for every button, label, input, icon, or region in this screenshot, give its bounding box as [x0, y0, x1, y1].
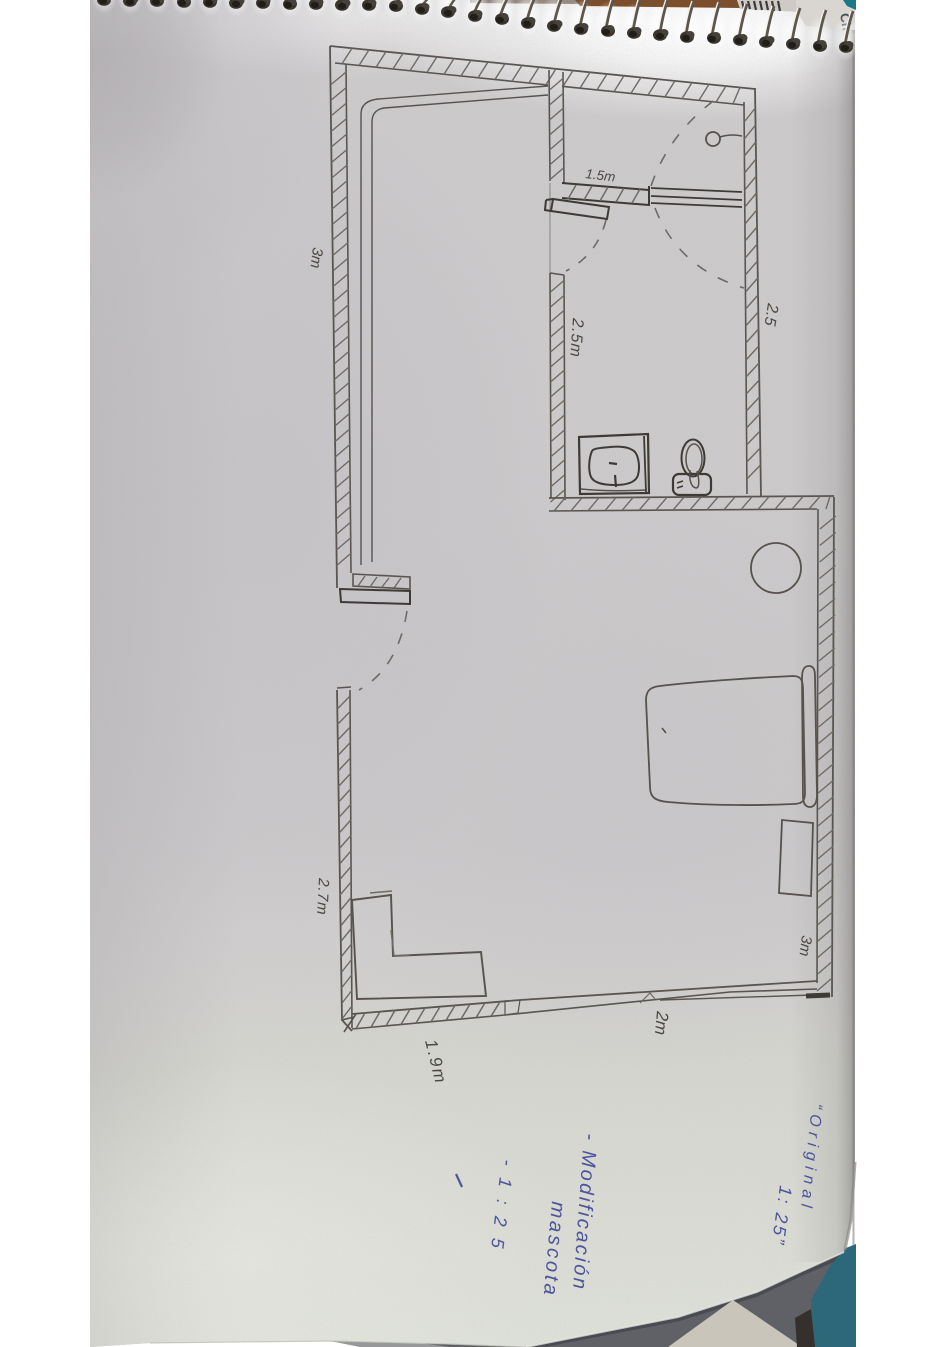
svg-text:2.5m: 2.5m — [566, 317, 586, 359]
svg-text:3m: 3m — [306, 247, 325, 270]
svg-text:2.5: 2.5 — [761, 301, 781, 327]
svg-text:2m: 2m — [651, 1010, 672, 1036]
svg-text:3m: 3m — [795, 935, 814, 958]
svg-text:2.7m: 2.7m — [313, 877, 332, 916]
